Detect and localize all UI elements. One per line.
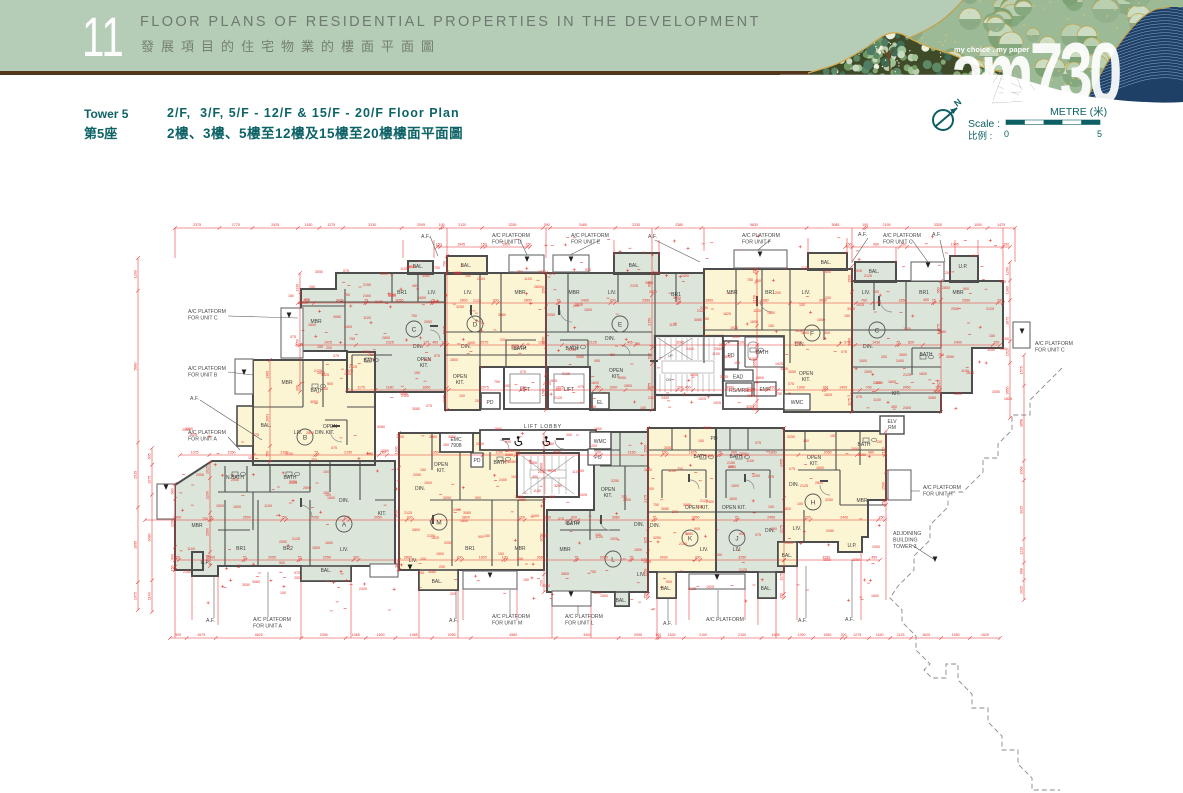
svg-text:1150: 1150 — [876, 633, 884, 637]
svg-text:2400: 2400 — [954, 341, 962, 345]
svg-text:LIV.: LIV. — [428, 290, 436, 296]
svg-text:750: 750 — [776, 392, 782, 396]
svg-text:2400: 2400 — [531, 514, 539, 518]
svg-text:3080: 3080 — [685, 532, 693, 536]
svg-text:2050: 2050 — [388, 293, 396, 297]
svg-text:2400: 2400 — [903, 406, 911, 410]
svg-text:FOR UNIT A: FOR UNIT A — [188, 437, 218, 443]
svg-text:1900: 1900 — [797, 386, 805, 390]
svg-text:075: 075 — [841, 350, 847, 354]
svg-text:1175: 1175 — [357, 386, 365, 390]
svg-text:3080: 3080 — [148, 534, 152, 542]
svg-text:2150: 2150 — [344, 451, 352, 455]
svg-text:075: 075 — [755, 441, 761, 445]
svg-text:MBR: MBR — [191, 523, 203, 529]
svg-text:UP: UP — [668, 354, 674, 358]
svg-text:450: 450 — [555, 388, 561, 392]
svg-text:150: 150 — [317, 345, 323, 349]
svg-text:750: 750 — [590, 570, 596, 574]
svg-text:2150: 2150 — [753, 295, 757, 303]
svg-text:2050: 2050 — [231, 478, 239, 482]
svg-text:J: J — [735, 536, 738, 543]
svg-text:3050: 3050 — [992, 390, 1000, 394]
svg-text:250: 250 — [997, 299, 1003, 303]
svg-text:2050: 2050 — [444, 541, 452, 545]
svg-text:3250: 3250 — [746, 405, 754, 409]
svg-text:3050: 3050 — [315, 270, 323, 274]
svg-text:2050: 2050 — [294, 576, 302, 580]
svg-text:2500: 2500 — [243, 516, 251, 520]
svg-text:2050: 2050 — [323, 556, 331, 560]
svg-text:2230: 2230 — [632, 223, 640, 227]
svg-text:2125: 2125 — [688, 587, 696, 591]
svg-text:BAL.: BAL. — [821, 260, 832, 266]
svg-text:075: 075 — [331, 446, 337, 450]
svg-text:200: 200 — [326, 346, 332, 350]
svg-text:K: K — [688, 536, 693, 543]
svg-text:3080: 3080 — [694, 318, 702, 322]
svg-text:EL: EL — [597, 400, 603, 406]
svg-text:3080: 3080 — [746, 389, 754, 393]
svg-text:MBR: MBR — [281, 380, 293, 386]
svg-text:75: 75 — [209, 516, 213, 520]
svg-text:WMC: WMC — [791, 400, 804, 406]
svg-text:D: D — [473, 322, 478, 329]
svg-text:2800: 2800 — [649, 290, 657, 294]
svg-text:2050: 2050 — [739, 452, 747, 456]
svg-text:150: 150 — [414, 371, 420, 375]
svg-text:2400: 2400 — [499, 478, 507, 482]
svg-text:100: 100 — [439, 223, 445, 227]
svg-text:1100: 1100 — [668, 469, 676, 473]
svg-text:150: 150 — [753, 268, 757, 274]
svg-text:898: 898 — [1020, 568, 1024, 574]
svg-text:3080: 3080 — [252, 580, 260, 584]
svg-text:2050: 2050 — [872, 545, 880, 549]
svg-text:1100: 1100 — [1001, 337, 1009, 341]
svg-text:BATH: BATH — [920, 352, 933, 358]
svg-text:2050: 2050 — [374, 516, 382, 520]
svg-text:2800: 2800 — [624, 384, 632, 388]
svg-text:1100: 1100 — [753, 309, 761, 313]
svg-text:150: 150 — [523, 578, 529, 582]
svg-text:2050: 2050 — [311, 516, 319, 520]
svg-text:A.F.: A.F. — [421, 234, 430, 240]
svg-text:250: 250 — [882, 500, 886, 506]
svg-text:750: 750 — [411, 314, 417, 318]
svg-text:1100: 1100 — [737, 341, 745, 345]
svg-text:2400: 2400 — [681, 274, 689, 278]
svg-text:200: 200 — [610, 299, 616, 303]
svg-text:2050: 2050 — [413, 473, 421, 477]
svg-text:900: 900 — [206, 556, 210, 562]
svg-text:3250: 3250 — [568, 348, 576, 352]
svg-text:1275: 1275 — [853, 633, 861, 637]
svg-text:200: 200 — [519, 516, 525, 520]
svg-text:605: 605 — [148, 453, 152, 459]
svg-text:100: 100 — [876, 440, 882, 444]
svg-text:2150: 2150 — [679, 542, 687, 546]
svg-text:150: 150 — [309, 285, 315, 289]
svg-text:2050: 2050 — [542, 584, 550, 588]
svg-text:1600: 1600 — [690, 373, 698, 377]
svg-text:2950: 2950 — [642, 299, 650, 303]
svg-text:5635: 5635 — [443, 326, 447, 334]
svg-text:075: 075 — [1000, 280, 1006, 284]
svg-text:200: 200 — [945, 271, 951, 275]
svg-text:3050: 3050 — [673, 296, 681, 300]
svg-text:OPEN KIT.: OPEN KIT. — [722, 505, 746, 511]
svg-text:1500: 1500 — [653, 271, 661, 275]
svg-text:1100: 1100 — [703, 426, 711, 430]
svg-text:DIN.: DIN. — [315, 430, 325, 436]
svg-text:2800: 2800 — [954, 392, 962, 396]
svg-text:2125: 2125 — [739, 568, 747, 572]
svg-text:3050: 3050 — [242, 583, 250, 587]
svg-text:A.F.: A.F. — [798, 618, 807, 624]
svg-text:1600: 1600 — [543, 516, 551, 520]
svg-text:BAL.: BAL. — [661, 586, 672, 592]
svg-text:100: 100 — [280, 591, 286, 595]
svg-text:3250: 3250 — [653, 536, 661, 540]
svg-text:3080: 3080 — [333, 315, 341, 319]
svg-text:1925: 1925 — [706, 585, 714, 589]
svg-text:390: 390 — [544, 223, 550, 227]
svg-text:1800: 1800 — [769, 451, 777, 455]
svg-text:100: 100 — [862, 223, 868, 227]
svg-text:1925: 1925 — [856, 303, 864, 307]
svg-text:680: 680 — [171, 488, 175, 494]
svg-text:200: 200 — [475, 399, 481, 403]
svg-text:900: 900 — [175, 633, 181, 637]
svg-text:1550: 1550 — [823, 633, 831, 637]
svg-text:LIV.: LIV. — [793, 526, 801, 532]
svg-text:2400: 2400 — [344, 325, 352, 329]
svg-text:75: 75 — [718, 451, 722, 455]
svg-text:BR1: BR1 — [919, 290, 929, 296]
svg-text:450: 450 — [685, 386, 691, 390]
svg-text:200: 200 — [439, 565, 445, 569]
svg-text:3050: 3050 — [645, 281, 653, 285]
svg-text:2680: 2680 — [537, 556, 545, 560]
svg-text:KIT.: KIT. — [604, 493, 613, 499]
svg-text:900: 900 — [585, 268, 591, 272]
svg-text:2150: 2150 — [801, 266, 809, 270]
svg-text:1600: 1600 — [594, 427, 602, 431]
svg-text:100: 100 — [323, 470, 329, 474]
svg-text:BAL.: BAL. — [616, 598, 627, 604]
svg-text:2125: 2125 — [404, 511, 412, 515]
svg-text:200: 200 — [578, 469, 584, 473]
svg-text:100: 100 — [420, 557, 426, 561]
svg-text:2100: 2100 — [699, 633, 707, 637]
svg-text:ADJOINING: ADJOINING — [893, 531, 921, 537]
svg-text:1100: 1100 — [187, 547, 195, 551]
svg-text:750: 750 — [494, 380, 500, 384]
svg-text:450: 450 — [517, 557, 523, 561]
svg-text:2850: 2850 — [692, 516, 700, 520]
svg-text:TOWER 3: TOWER 3 — [893, 544, 917, 550]
svg-text:U.P.: U.P. — [958, 264, 967, 270]
svg-text:1500: 1500 — [823, 558, 831, 562]
svg-text:1600: 1600 — [377, 633, 385, 637]
svg-text:200: 200 — [353, 556, 359, 560]
svg-text:900: 900 — [666, 580, 672, 584]
svg-text:450: 450 — [432, 341, 438, 345]
svg-text:2300: 2300 — [173, 516, 181, 520]
svg-text:2825: 2825 — [937, 380, 941, 388]
svg-text:A.F.: A.F. — [190, 396, 199, 402]
svg-text:150: 150 — [367, 452, 373, 456]
svg-text:BR1: BR1 — [236, 546, 246, 552]
svg-text:100: 100 — [698, 439, 704, 443]
svg-text:BATH: BATH — [364, 358, 377, 364]
svg-text:A/C PLATFORM: A/C PLATFORM — [742, 233, 780, 239]
svg-text:1400: 1400 — [839, 386, 847, 390]
svg-text:3085: 3085 — [831, 223, 839, 227]
svg-text:A/C PLATFORM: A/C PLATFORM — [188, 309, 226, 315]
svg-text:1925: 1925 — [698, 397, 706, 401]
svg-text:2800: 2800 — [783, 507, 791, 511]
svg-text:3250: 3250 — [825, 498, 833, 502]
svg-text:2400: 2400 — [767, 516, 775, 520]
svg-text:450: 450 — [590, 405, 596, 409]
svg-text:A/C PLATFORM: A/C PLATFORM — [1035, 341, 1073, 347]
svg-text:1100: 1100 — [285, 452, 293, 456]
svg-text:5630: 5630 — [750, 223, 758, 227]
svg-text:2400: 2400 — [896, 359, 904, 363]
svg-text:150: 150 — [481, 243, 487, 247]
svg-text:075: 075 — [520, 370, 526, 374]
svg-text:C: C — [412, 327, 417, 334]
svg-text:2050: 2050 — [951, 307, 959, 311]
svg-text:1500: 1500 — [864, 370, 872, 374]
svg-text:BAL.: BAL. — [321, 568, 332, 574]
svg-text:4580: 4580 — [509, 633, 517, 637]
svg-text:A/C PLATFORM: A/C PLATFORM — [571, 233, 609, 239]
svg-text:3850: 3850 — [1006, 387, 1010, 395]
svg-text:1100: 1100 — [780, 367, 788, 371]
svg-text:900: 900 — [694, 527, 700, 531]
svg-text:075: 075 — [856, 395, 862, 399]
svg-text:150: 150 — [716, 553, 722, 557]
svg-text:300: 300 — [571, 516, 577, 520]
svg-text:2400: 2400 — [661, 396, 669, 400]
svg-text:1025: 1025 — [206, 466, 210, 474]
svg-text:2800: 2800 — [450, 358, 458, 362]
svg-text:075: 075 — [549, 272, 555, 276]
svg-text:1925: 1925 — [423, 358, 431, 362]
svg-text:750: 750 — [266, 451, 270, 457]
svg-text:750: 750 — [634, 342, 640, 346]
svg-text:2150: 2150 — [700, 306, 708, 310]
svg-text:2095: 2095 — [448, 633, 456, 637]
svg-text:2325: 2325 — [386, 341, 394, 345]
svg-text:2800: 2800 — [303, 486, 311, 490]
svg-text:2125: 2125 — [554, 396, 562, 400]
svg-text:A/C PLATFORM: A/C PLATFORM — [883, 233, 921, 239]
svg-text:2400: 2400 — [515, 495, 523, 499]
svg-text:2395: 2395 — [320, 633, 328, 637]
svg-text:2150: 2150 — [183, 570, 191, 574]
svg-text:3080: 3080 — [661, 507, 669, 511]
svg-text:DIN.: DIN. — [605, 336, 615, 342]
svg-text:1625: 1625 — [922, 633, 930, 637]
svg-text:3080: 3080 — [508, 460, 516, 464]
svg-text:3050: 3050 — [788, 370, 796, 374]
svg-text:3080: 3080 — [428, 570, 436, 574]
svg-text:75: 75 — [298, 556, 302, 560]
svg-text:FOR UNIT A: FOR UNIT A — [253, 624, 283, 630]
svg-text:1945: 1945 — [457, 243, 465, 247]
svg-text:A/C PLATFORM: A/C PLATFORM — [253, 617, 291, 623]
svg-text:LIV.: LIV. — [608, 290, 616, 296]
svg-text:900: 900 — [1000, 347, 1006, 351]
svg-text:KIT.: KIT. — [456, 380, 465, 386]
svg-text:150: 150 — [846, 243, 852, 247]
svg-text:2380: 2380 — [675, 223, 683, 227]
svg-text:1100: 1100 — [524, 277, 532, 281]
svg-text:150: 150 — [420, 468, 426, 472]
svg-text:1925: 1925 — [854, 269, 862, 273]
svg-text:450: 450 — [532, 475, 538, 479]
svg-text:2575: 2575 — [480, 341, 488, 345]
svg-text:1550: 1550 — [644, 569, 648, 577]
svg-text:1825: 1825 — [1004, 397, 1012, 401]
svg-text:3250: 3250 — [787, 435, 795, 439]
svg-text:1600: 1600 — [494, 427, 502, 431]
svg-text:1825: 1825 — [723, 312, 731, 316]
svg-text:1175: 1175 — [780, 573, 784, 581]
svg-text:075: 075 — [755, 533, 761, 537]
svg-text:LIV.: LIV. — [733, 547, 741, 553]
svg-text:BATH: BATH — [858, 442, 871, 448]
svg-text:1550: 1550 — [228, 451, 236, 455]
svg-text:A.F.: A.F. — [206, 618, 215, 624]
svg-text:750: 750 — [703, 317, 709, 321]
svg-text:2050: 2050 — [851, 447, 859, 451]
svg-text:MBR: MBR — [514, 290, 526, 296]
svg-text:1850: 1850 — [422, 386, 430, 390]
svg-text:1925: 1925 — [713, 401, 721, 405]
svg-text:150: 150 — [525, 243, 531, 247]
svg-text:DIN.: DIN. — [634, 522, 644, 528]
svg-text:75: 75 — [243, 556, 247, 560]
svg-text:2400: 2400 — [785, 541, 793, 545]
svg-text:FOR UNIT C: FOR UNIT C — [1035, 348, 1065, 354]
svg-text:200: 200 — [591, 444, 597, 448]
svg-text:2400: 2400 — [686, 347, 694, 351]
svg-text:2050: 2050 — [196, 473, 204, 477]
svg-text:2400: 2400 — [840, 516, 848, 520]
svg-text:2400: 2400 — [336, 299, 344, 303]
svg-text:1180: 1180 — [386, 386, 394, 390]
svg-text:1600: 1600 — [871, 594, 879, 598]
svg-text:2800: 2800 — [476, 442, 484, 446]
svg-text:2515: 2515 — [134, 471, 138, 479]
svg-text:380: 380 — [395, 562, 399, 568]
svg-text:900: 900 — [279, 561, 285, 565]
svg-text:1575: 1575 — [197, 633, 205, 637]
svg-text:A.F.: A.F. — [932, 232, 941, 238]
svg-text:750: 750 — [311, 458, 317, 462]
svg-text:2400: 2400 — [933, 390, 941, 394]
svg-text:1825: 1825 — [431, 536, 439, 540]
svg-text:1100: 1100 — [363, 316, 371, 320]
svg-text:DIN.: DIN. — [789, 482, 799, 488]
svg-text:200: 200 — [566, 433, 572, 437]
svg-text:1075: 1075 — [148, 476, 152, 484]
svg-text:960: 960 — [873, 243, 879, 247]
svg-text:075: 075 — [578, 385, 584, 389]
svg-text:7908: 7908 — [450, 443, 461, 449]
svg-text:1500: 1500 — [584, 308, 592, 312]
svg-text:2800: 2800 — [794, 341, 802, 345]
svg-text:A/C PLATFORM: A/C PLATFORM — [492, 233, 530, 239]
svg-text:BAL.: BAL. — [782, 553, 793, 559]
svg-text:200: 200 — [407, 516, 413, 520]
svg-text:2400: 2400 — [453, 508, 461, 512]
svg-text:250: 250 — [993, 341, 999, 345]
svg-text:75: 75 — [652, 516, 656, 520]
svg-text:MBR: MBR — [514, 546, 526, 552]
svg-text:FOR UNIT E: FOR UNIT E — [571, 240, 601, 246]
svg-text:BUILDING: BUILDING — [893, 538, 918, 544]
svg-text:2800: 2800 — [705, 299, 713, 303]
svg-text:150: 150 — [504, 384, 510, 388]
svg-text:2375: 2375 — [193, 223, 201, 227]
svg-text:1600: 1600 — [591, 381, 599, 385]
svg-text:1210: 1210 — [1020, 547, 1024, 555]
svg-text:1600: 1600 — [919, 372, 927, 376]
svg-text:1100: 1100 — [669, 323, 677, 327]
svg-text:200: 200 — [450, 592, 456, 596]
svg-text:200: 200 — [493, 299, 499, 303]
svg-text:075: 075 — [343, 269, 349, 273]
svg-text:1600: 1600 — [888, 380, 896, 384]
svg-text:075: 075 — [434, 354, 440, 358]
svg-text:2050: 2050 — [547, 313, 555, 317]
svg-text:250: 250 — [879, 516, 885, 520]
svg-text:200: 200 — [648, 487, 654, 491]
svg-text:150: 150 — [465, 274, 471, 278]
svg-text:1600: 1600 — [479, 556, 487, 560]
svg-text:2125: 2125 — [292, 537, 300, 541]
svg-text:1500: 1500 — [233, 505, 241, 509]
svg-text:1125: 1125 — [897, 633, 905, 637]
svg-text:150: 150 — [595, 533, 601, 537]
svg-text:1600: 1600 — [750, 320, 758, 324]
svg-text:2800: 2800 — [561, 572, 569, 576]
svg-text:2125: 2125 — [562, 372, 570, 376]
svg-text:1875: 1875 — [648, 383, 652, 391]
svg-text:LIFT LOBBY: LIFT LOBBY — [524, 424, 562, 430]
svg-text:100: 100 — [655, 633, 661, 637]
svg-text:A/C PLATFORM: A/C PLATFORM — [923, 485, 961, 491]
svg-text:3250: 3250 — [289, 480, 297, 484]
svg-text:1600: 1600 — [823, 270, 831, 274]
svg-text:075: 075 — [789, 467, 795, 471]
svg-text:450: 450 — [322, 387, 328, 391]
svg-text:750: 750 — [368, 353, 374, 357]
svg-text:450: 450 — [443, 443, 449, 447]
svg-text:LIV.: LIV. — [700, 547, 708, 553]
svg-text:FOR UNIT D: FOR UNIT D — [492, 240, 522, 246]
svg-text:2125: 2125 — [800, 484, 808, 488]
svg-text:1075: 1075 — [134, 592, 138, 600]
svg-text:150: 150 — [803, 439, 809, 443]
svg-text:2400: 2400 — [644, 468, 652, 472]
